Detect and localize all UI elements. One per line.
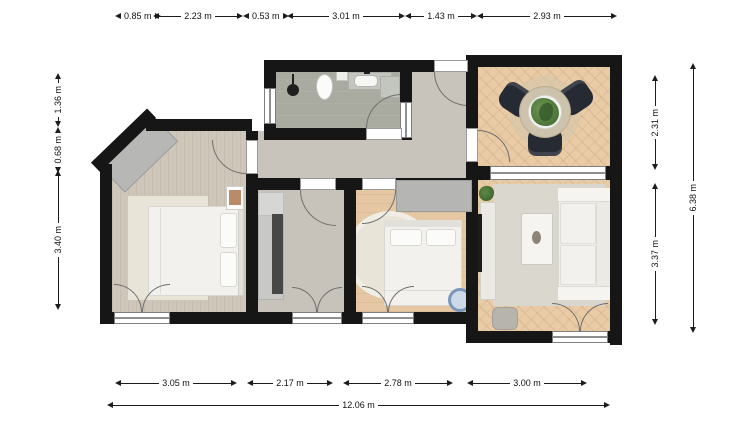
french-door-sill xyxy=(362,312,414,324)
bed-middle-blanket-fold xyxy=(385,290,461,291)
dimension-label: 3.37 m xyxy=(651,237,660,271)
dimension-left-3: 3.40 m xyxy=(52,170,64,310)
bed-left-pillow xyxy=(220,252,237,287)
sofa-arm-top xyxy=(558,188,610,202)
dimension-label: 1.43 m xyxy=(424,12,458,21)
dimension-label: 3.00 m xyxy=(510,379,544,388)
dimension-label: 2.17 m xyxy=(273,379,307,388)
bed-left-headboard xyxy=(238,206,244,296)
wall xyxy=(344,190,356,312)
coffee-table-decor xyxy=(532,231,541,244)
dimension-label: 0.53 m xyxy=(249,12,283,21)
wall xyxy=(478,166,490,180)
bathroom-window xyxy=(264,88,276,124)
wall xyxy=(336,178,362,190)
dimension-label: 2.78 m xyxy=(381,379,415,388)
wall xyxy=(610,55,622,345)
wall xyxy=(606,166,612,180)
framed-picture-art xyxy=(229,190,241,205)
wardrobe-middle xyxy=(396,180,472,212)
dimension-label: 12.06 m xyxy=(339,401,378,410)
tv-console xyxy=(480,202,496,300)
dimension-left-2: 0.68 m xyxy=(52,127,64,170)
dimension-label: 0.68 m xyxy=(54,133,63,167)
dimension-label: 3.05 m xyxy=(159,379,193,388)
wall xyxy=(246,131,258,140)
dimension-bottom-4: 3.00 m xyxy=(467,378,587,388)
wall xyxy=(170,312,264,324)
french-door-sill xyxy=(114,312,170,324)
sofa-cushion xyxy=(560,245,596,285)
wall xyxy=(400,72,412,102)
dimension-left-1: 1.36 m xyxy=(52,73,64,127)
bed-middle-headboard xyxy=(384,220,462,227)
dimension-label: 3.01 m xyxy=(329,12,363,21)
sink xyxy=(354,75,378,87)
wall xyxy=(146,119,252,131)
wall xyxy=(412,60,434,72)
dimension-label: 3.40 m xyxy=(54,223,63,257)
wall xyxy=(246,174,258,324)
french-door-sill xyxy=(552,331,608,343)
dimension-top-2: 2.23 m xyxy=(153,11,243,21)
wall xyxy=(264,128,366,140)
bed-left-blanket-fold xyxy=(160,208,161,294)
shower-pipe xyxy=(292,74,294,84)
wall xyxy=(264,312,292,324)
bedroom-middle-door-threshold xyxy=(362,178,396,190)
dimension-bottom-1: 3.05 m xyxy=(115,378,237,388)
dimension-top-3: 0.53 m xyxy=(243,11,287,21)
dining-living-window-band xyxy=(490,166,606,180)
wall xyxy=(466,162,478,178)
entry-door-threshold xyxy=(434,60,468,72)
wall xyxy=(342,312,362,324)
floorplan-page: 0.85 m 2.23 m 0.53 m 3.01 m 1.43 m 2.93 … xyxy=(0,0,750,422)
dimension-label: 0.85 m xyxy=(121,12,155,21)
french-door-sill xyxy=(292,312,342,324)
dimension-label: 1.36 m xyxy=(54,83,63,117)
dimension-label: 2.31 m xyxy=(651,106,660,140)
wall xyxy=(100,164,112,324)
shower-head xyxy=(287,84,299,96)
wall xyxy=(608,331,622,343)
dining-door-threshold xyxy=(466,128,478,162)
dimension-top-5: 1.43 m xyxy=(405,11,477,21)
dimension-label: 6.38 m xyxy=(689,181,698,215)
office-cabinet-front xyxy=(272,214,283,294)
dimension-right-total: 6.38 m xyxy=(687,63,699,333)
wall xyxy=(466,67,478,128)
office-door-threshold xyxy=(300,178,336,190)
wall xyxy=(252,178,300,190)
wall xyxy=(466,331,552,343)
wall xyxy=(466,55,622,67)
sofa-arm-bottom xyxy=(558,286,610,300)
dimension-label: 2.93 m xyxy=(530,12,564,21)
wall xyxy=(264,60,412,72)
bed-left-pillow xyxy=(220,213,237,248)
wall xyxy=(100,312,114,324)
bed-middle-pillow xyxy=(426,229,456,246)
dimension-bottom-2: 2.17 m xyxy=(247,378,333,388)
office-cabinet-top xyxy=(258,192,284,216)
bathroom-door-threshold xyxy=(366,128,402,140)
dimension-top-1: 0.85 m xyxy=(115,11,153,21)
dimension-right-1: 2.31 m xyxy=(649,75,661,170)
bed-middle-pillow xyxy=(390,229,422,246)
dimension-right-2: 3.37 m xyxy=(649,183,661,325)
wall xyxy=(264,72,276,88)
dimension-top-6: 2.93 m xyxy=(477,11,617,21)
tv xyxy=(478,214,482,272)
bedroom-left-door-threshold xyxy=(246,140,258,174)
dimension-label: 2.23 m xyxy=(181,12,215,21)
dimension-bottom-total: 12.06 m xyxy=(107,400,610,410)
dimension-top-4: 3.01 m xyxy=(287,11,405,21)
dimension-bottom-3: 2.78 m xyxy=(343,378,453,388)
sofa-back xyxy=(596,202,610,286)
pouf xyxy=(492,307,518,330)
sofa-cushion xyxy=(560,203,596,244)
